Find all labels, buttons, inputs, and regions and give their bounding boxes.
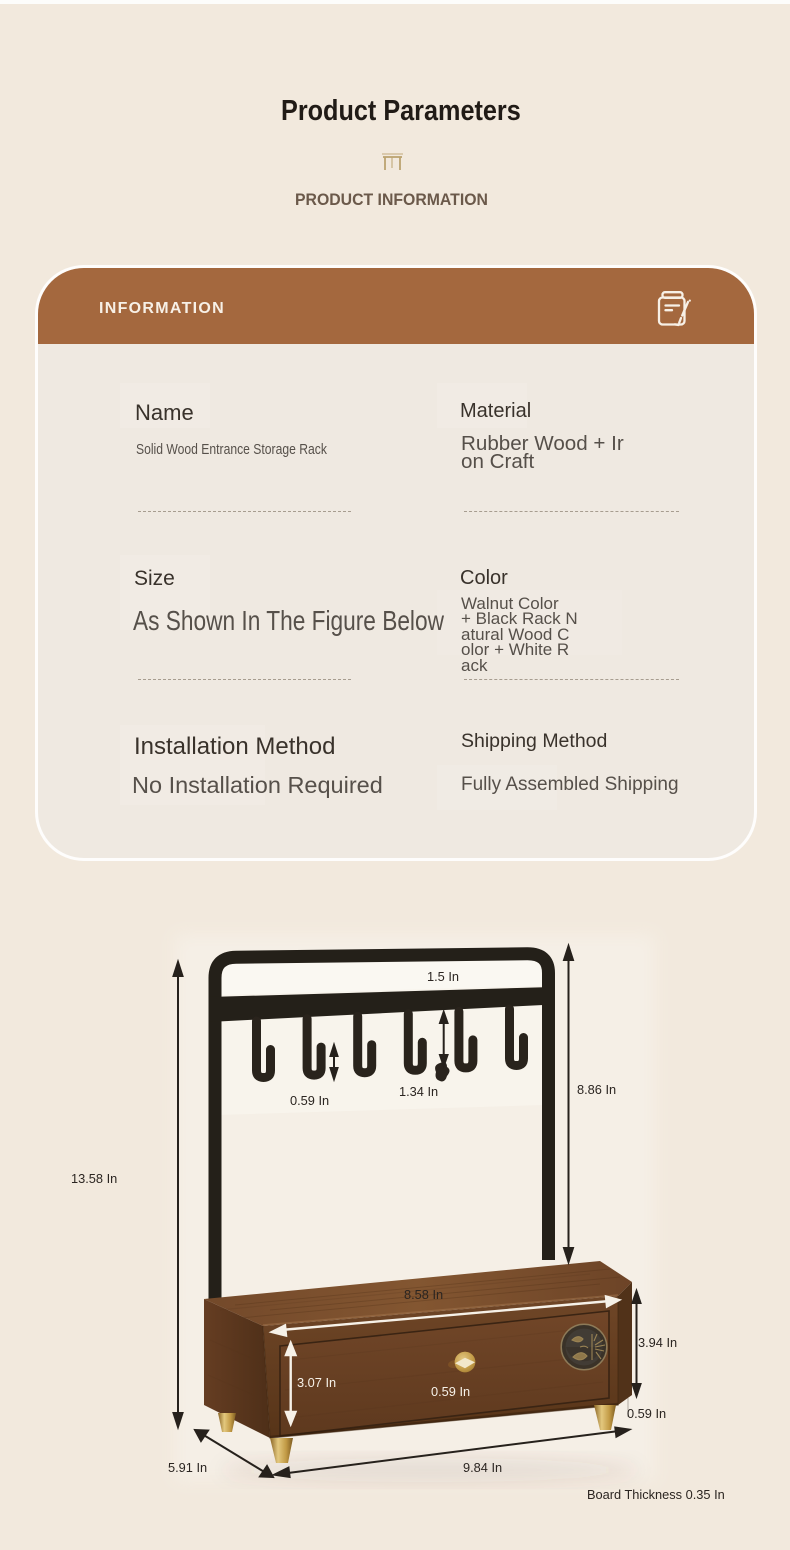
svg-text:8.58 In: 8.58 In bbox=[404, 1287, 443, 1302]
svg-text:9.84 In: 9.84 In bbox=[463, 1460, 502, 1475]
svg-text:3.07 In: 3.07 In bbox=[297, 1375, 336, 1390]
svg-text:8.86 In: 8.86 In bbox=[577, 1082, 616, 1097]
svg-text:Board Thickness 0.35 In: Board Thickness 0.35 In bbox=[587, 1487, 725, 1502]
svg-text:0.59 In: 0.59 In bbox=[431, 1384, 470, 1399]
svg-text:1.34 In: 1.34 In bbox=[399, 1084, 438, 1099]
svg-text:5.91 In: 5.91 In bbox=[168, 1460, 207, 1475]
svg-text:3.94 In: 3.94 In bbox=[638, 1335, 677, 1350]
svg-text:13.58 In: 13.58 In bbox=[71, 1171, 117, 1186]
svg-text:1.5 In: 1.5 In bbox=[427, 969, 459, 984]
svg-text:0.59 In: 0.59 In bbox=[290, 1093, 329, 1108]
svg-text:0.59 In: 0.59 In bbox=[627, 1406, 666, 1421]
